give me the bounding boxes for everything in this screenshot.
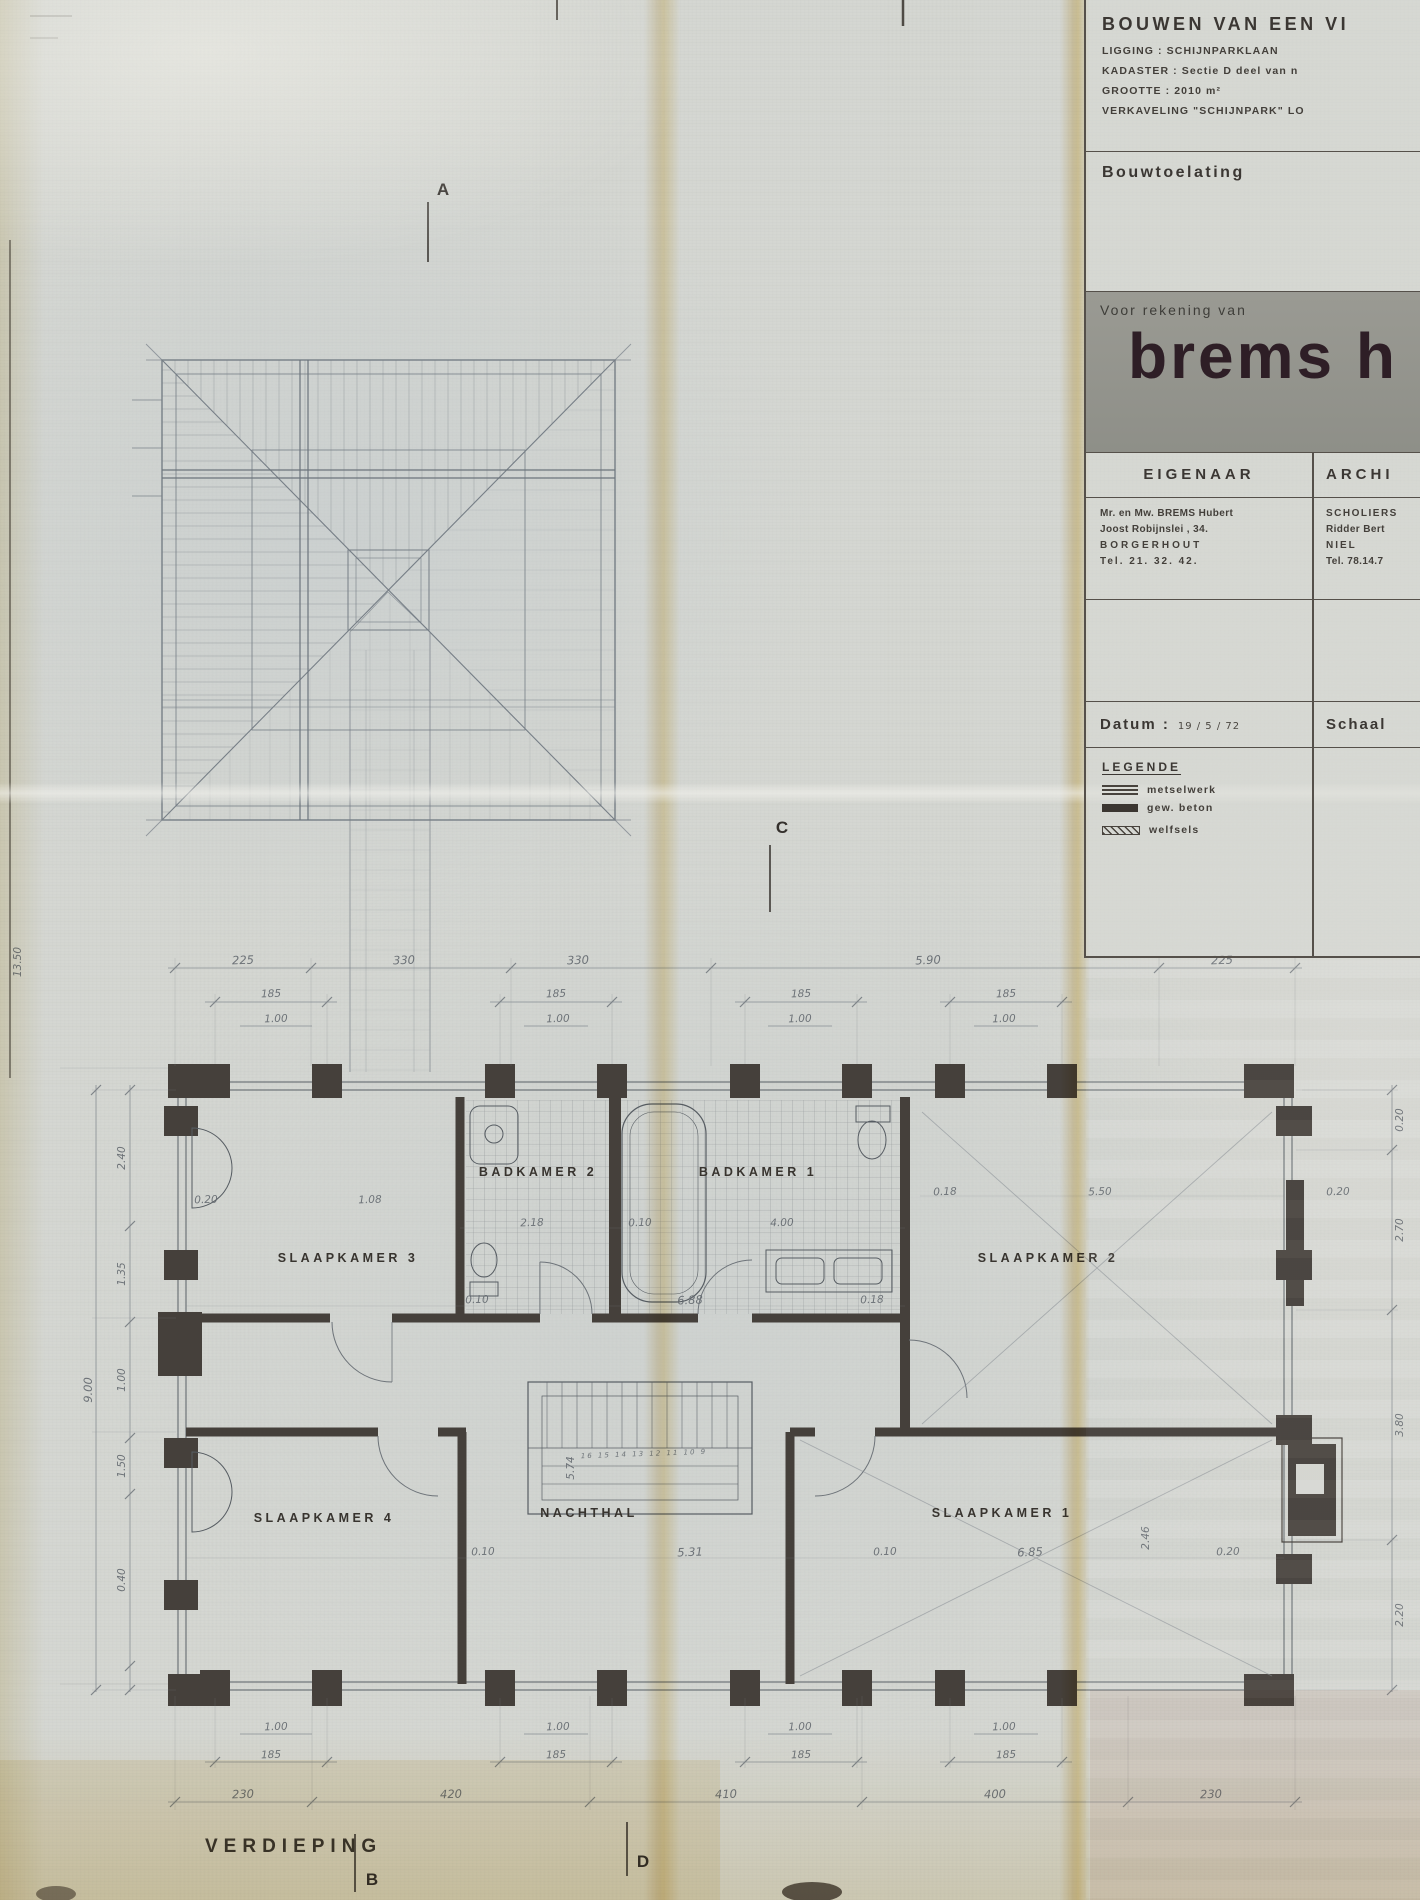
room-label-slaapkamer-2: SLAAPKAMER 2 <box>978 1251 1119 1265</box>
dim-left-outer: 9.00 <box>81 1377 95 1403</box>
dim-top-bay-3: 5.90 <box>915 953 941 968</box>
project-info-verkaveling: VERKAVELING "SCHIJNPARK" LO <box>1086 101 1420 121</box>
floor-plan <box>60 1064 1392 1706</box>
architect-line-0: SCHOLIERS <box>1326 506 1398 522</box>
stair-tower <box>350 592 430 1072</box>
legend-label-gew-beton: gew. beton <box>1147 802 1213 814</box>
dim-upper-3: 0.10 <box>628 1217 652 1230</box>
title-block-project-row: BOUWEN VAN EEN VI LIGGING : SCHIJNPARKLA… <box>1086 0 1420 152</box>
dim-top-window-0: 185 <box>261 988 281 1001</box>
dim-bottom-bay-0: 230 <box>232 1787 254 1802</box>
room-label-slaapkamer-1: SLAAPKAMER 1 <box>932 1506 1073 1520</box>
dim-left-3: 1.50 <box>116 1454 128 1477</box>
party-detail-row: Mr. en Mw. BREMS Hubert Joost Robijnslei… <box>1086 498 1420 600</box>
legend-header: LEGENDE <box>1102 760 1312 774</box>
legend-item-metselwerk: metselwerk <box>1102 784 1312 796</box>
dim-top-window-1: 185 <box>546 988 566 1001</box>
dim-bottom-pier-2: 1.00 <box>788 1721 812 1734</box>
dim-top-bay-1: 330 <box>393 953 415 968</box>
scan-smudges <box>36 1882 842 1900</box>
client-band: Voor rekening van brems h <box>1086 292 1420 453</box>
date-label: Datum : <box>1100 716 1170 733</box>
legend-item-gew-beton: gew. beton <box>1102 802 1312 814</box>
staircase <box>528 1382 752 1514</box>
dim-corridor-1: 6.88 <box>677 1293 703 1308</box>
dim-corridor-2: 0.18 <box>860 1294 884 1307</box>
spare-row <box>1086 600 1420 702</box>
dim-right-2: 3.80 <box>1394 1413 1406 1436</box>
section-marker-b: B <box>366 1870 378 1890</box>
owner-line-3: Tel. 21. 32. 42. <box>1100 554 1312 570</box>
owner-header: EIGENAAR <box>1086 466 1312 483</box>
legend-item-welfsels: welfsels <box>1102 824 1312 836</box>
chimney <box>1282 1180 1342 1542</box>
dim-top-bay-0: 225 <box>232 953 254 968</box>
architect-line-1: Ridder Bert <box>1326 522 1398 538</box>
architect-header: ARCHI <box>1312 466 1394 483</box>
owner-line-1: Joost Robijnslei , 34. <box>1100 522 1312 538</box>
room-label-slaapkamer-3: SLAAPKAMER 3 <box>278 1251 419 1265</box>
client-name: brems h <box>1086 318 1420 388</box>
dim-bottom-pier-3: 1.00 <box>992 1721 1016 1734</box>
dim-lower-0: 0.10 <box>471 1546 495 1559</box>
dim-lower-1: 5.31 <box>677 1545 703 1560</box>
blueprint-sheet: { "sheet": { "floor_label": "VERDIEPING"… <box>0 0 1420 1900</box>
dim-lower-3: 6.85 <box>1017 1545 1043 1560</box>
concrete-solid-icon <box>1102 804 1138 812</box>
dim-right-3: 2.20 <box>1394 1603 1406 1626</box>
section-marker-c: C <box>776 818 788 838</box>
room-label-nachthal: NACHTHAL <box>540 1506 637 1520</box>
dim-top-window-2: 185 <box>791 988 811 1001</box>
dim-upper-5: 0.18 <box>933 1186 957 1199</box>
slab-diagonal-icon <box>1102 826 1140 835</box>
legend-label-welfsels: welfsels <box>1149 824 1199 836</box>
project-info-grootte: GROOTTE : 2010 m² <box>1086 81 1420 101</box>
title-block-column-divider <box>1312 452 1314 956</box>
project-info-kadaster: KADASTER : Sectie D deel van n <box>1086 61 1420 81</box>
dim-stair-width: 5.74 <box>565 1456 577 1479</box>
dim-top-pier-0: 1.00 <box>264 1013 288 1026</box>
dim-bottom-bay-3: 400 <box>984 1787 1006 1802</box>
dim-top-window-3: 185 <box>996 988 1016 1001</box>
owner-line-2: BORGERHOUT <box>1100 538 1312 554</box>
dim-upper-0: 0.20 <box>194 1194 218 1207</box>
dim-right-0: 0.20 <box>1394 1108 1406 1131</box>
legend: LEGENDE metselwerk gew. beton welfsels <box>1086 748 1312 836</box>
permit-row: Bouwtoelating <box>1086 152 1420 292</box>
project-title: BOUWEN VAN EEN VI <box>1086 0 1420 41</box>
dim-upper-4: 4.00 <box>770 1217 794 1230</box>
room-label-badkamer-2: BADKAMER 2 <box>479 1165 597 1179</box>
scale-label: Schaal <box>1312 716 1386 733</box>
dim-lower-2: 0.10 <box>873 1546 897 1559</box>
room-label-slaapkamer-4: SLAAPKAMER 4 <box>254 1511 395 1525</box>
account-label: Voor rekening van <box>1086 292 1420 318</box>
dim-upper-2: 2.18 <box>520 1217 544 1230</box>
dim-top-pier-1: 1.00 <box>546 1013 570 1026</box>
dim-left-0: 2.40 <box>116 1146 128 1169</box>
dim-corridor-0: 0.10 <box>465 1294 489 1307</box>
dim-bottom-bay-2: 410 <box>715 1787 737 1802</box>
dim-right-1: 2.70 <box>1394 1218 1406 1241</box>
title-block: BOUWEN VAN EEN VI LIGGING : SCHIJNPARKLA… <box>1084 0 1420 958</box>
floor-title: VERDIEPING <box>205 1836 382 1858</box>
dim-upper-1: 1.08 <box>358 1194 382 1207</box>
owner-line-0: Mr. en Mw. BREMS Hubert <box>1100 506 1312 522</box>
architect-line-3: Tel. 78.14.7 <box>1326 554 1398 570</box>
permit-label: Bouwtoelating <box>1086 152 1420 182</box>
dim-top-bay-2: 330 <box>567 953 589 968</box>
dim-upper-7: 0.20 <box>1326 1186 1350 1199</box>
dim-upper-6: 5.50 <box>1088 1186 1112 1199</box>
roof-plan <box>132 344 631 1072</box>
project-info-ligging: LIGGING : SCHIJNPARKLAAN <box>1086 41 1420 61</box>
dim-bottom-window-3: 185 <box>996 1749 1016 1762</box>
section-marker-a: A <box>437 180 449 200</box>
dim-top-pier-3: 1.00 <box>992 1013 1016 1026</box>
masonry-hatch-icon <box>1102 785 1138 795</box>
dim-left-1: 1.35 <box>116 1262 128 1285</box>
legend-label-metselwerk: metselwerk <box>1147 784 1216 796</box>
dim-bottom-bay-1: 420 <box>440 1787 462 1802</box>
room-label-badkamer-1: BADKAMER 1 <box>699 1165 817 1179</box>
dim-bottom-pier-0: 1.00 <box>264 1721 288 1734</box>
dim-bottom-window-2: 185 <box>791 1749 811 1762</box>
dim-bottom-bay-4: 230 <box>1200 1787 1222 1802</box>
date-scale-row: Datum : 19 / 5 / 72 Schaal <box>1086 702 1420 748</box>
dim-bottom-window-0: 185 <box>261 1749 281 1762</box>
dim-top-pier-2: 1.00 <box>788 1013 812 1026</box>
date-value: 19 / 5 / 72 <box>1178 721 1240 732</box>
party-header-row: EIGENAAR ARCHI <box>1086 452 1420 498</box>
section-marker-d: D <box>637 1852 649 1872</box>
dim-left-edge: 13.50 <box>12 947 24 977</box>
dim-bottom-window-1: 185 <box>546 1749 566 1762</box>
dim-left-2: 1.00 <box>116 1368 128 1391</box>
dim-lower-4: 0.20 <box>1216 1546 1240 1559</box>
dim-chimney: 2.46 <box>1140 1526 1152 1549</box>
architect-line-2: NIEL <box>1326 538 1398 554</box>
dim-left-4: 0.40 <box>116 1568 128 1591</box>
dim-bottom-pier-1: 1.00 <box>546 1721 570 1734</box>
